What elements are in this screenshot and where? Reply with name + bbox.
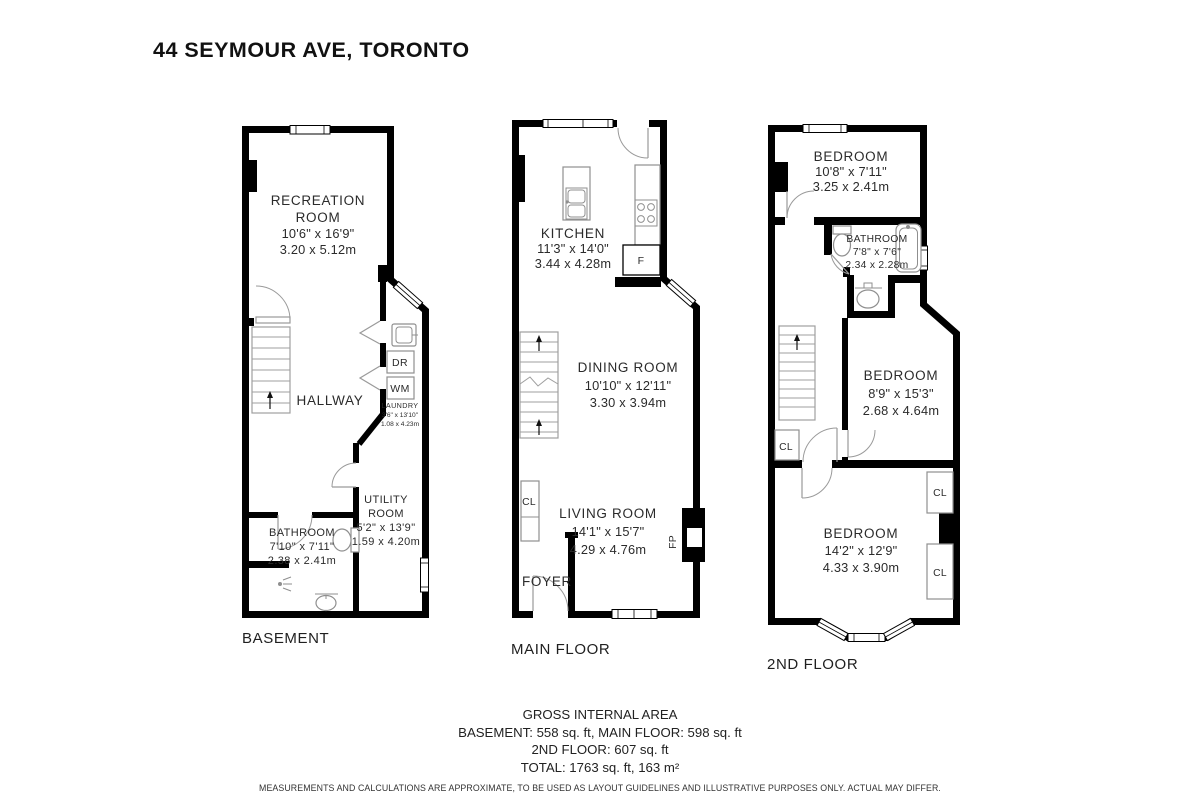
kitchen-metric: 3.44 x 4.28m xyxy=(535,256,611,271)
bedroom3-metric: 4.33 x 3.90m xyxy=(823,560,899,575)
utility-room-name-1: UTILITY xyxy=(364,494,408,506)
disclaimer-text: MEASUREMENTS AND CALCULATIONS ARE APPROX… xyxy=(0,780,1200,798)
kitchen-imperial: 11'3" x 14'0" xyxy=(537,241,609,256)
vanity-sink-icon xyxy=(855,283,882,308)
recreation-room-name-1: RECREATION xyxy=(271,193,366,208)
basement-bathroom-name: BATHROOM xyxy=(269,527,335,539)
utility-room-imperial: 5'2" x 13'9" xyxy=(356,522,415,534)
fireplace-label: FP xyxy=(668,535,679,549)
bedroom2-imperial: 8'9" x 15'3" xyxy=(868,386,933,401)
laundry-name: LAUNDRY xyxy=(381,401,418,410)
closet-label: CL xyxy=(779,442,793,453)
recreation-room-imperial: 10'6" x 16'9" xyxy=(282,226,355,241)
second-bathroom-imperial: 7'8" x 7'6" xyxy=(853,247,901,258)
fireplace-icon xyxy=(682,508,705,562)
bedroom3-imperial: 14'2" x 12'9" xyxy=(825,543,898,558)
window-icon xyxy=(393,281,422,308)
closet-box xyxy=(521,481,539,541)
bedroom1-metric: 3.25 x 2.41m xyxy=(813,179,889,194)
closet-label: CL xyxy=(933,488,947,499)
dryer-label: DR xyxy=(392,357,408,369)
living-room-imperial: 14'1" x 15'7" xyxy=(572,524,645,539)
recreation-room-metric: 3.20 x 5.12m xyxy=(280,242,356,257)
kitchen-island xyxy=(563,167,590,220)
window-icon xyxy=(666,279,695,306)
main-floor-caption: MAIN FLOOR xyxy=(511,641,610,658)
floorplan-page: 44 SEYMOUR AVE, TORONTO xyxy=(0,0,1200,805)
washer-label: WM xyxy=(390,383,409,395)
window-icon xyxy=(612,610,657,619)
shower-head-icon xyxy=(278,577,292,591)
dining-room-metric: 3.30 x 3.94m xyxy=(590,395,666,410)
second-floor-caption: 2ND FLOOR xyxy=(767,656,858,673)
basement-stairs xyxy=(252,327,290,413)
bay-window-icon xyxy=(848,634,885,642)
bedroom1-name: BEDROOM xyxy=(814,149,889,164)
main-closet-label: CL xyxy=(522,497,536,508)
bedroom2-name: BEDROOM xyxy=(864,368,939,383)
second-stairs xyxy=(779,326,815,420)
foyer-name: FOYER xyxy=(522,574,572,589)
area-line-basement-main: BASEMENT: 558 sq. ft, MAIN FLOOR: 598 sq… xyxy=(0,724,1200,742)
living-room-metric: 4.29 x 4.76m xyxy=(570,542,646,557)
area-line-second: 2ND FLOOR: 607 sq. ft xyxy=(0,741,1200,759)
utility-room-metric: 1.59 x 4.20m xyxy=(352,536,420,548)
window-icon xyxy=(543,120,613,128)
bay-window-icon xyxy=(884,618,915,640)
closet-label: CL xyxy=(933,568,947,579)
second-bathroom-metric: 2.34 x 2.28m xyxy=(845,260,908,271)
gross-area-heading: GROSS INTERNAL AREA xyxy=(0,706,1200,724)
basement-bathroom-imperial: 7'10" x 7'11" xyxy=(270,541,335,553)
dining-room-name: DINING ROOM xyxy=(578,360,679,375)
second-bathroom-name: BATHROOM xyxy=(846,234,907,245)
second-floor-plan: BEDROOM 10'8" x 7'11" 3.25 x 2.41m BATHR… xyxy=(755,112,975,687)
stairs-break-line xyxy=(520,377,558,386)
window-icon xyxy=(803,125,847,133)
bay-window-icon xyxy=(817,618,848,640)
footer-area-summary: GROSS INTERNAL AREA BASEMENT: 558 sq. ft… xyxy=(0,706,1200,798)
dining-room-imperial: 10'10" x 12'11" xyxy=(585,378,671,393)
bedroom2-metric: 2.68 x 4.64m xyxy=(863,403,939,418)
area-line-total: TOTAL: 1763 sq. ft, 163 m² xyxy=(0,759,1200,777)
fridge-label: F xyxy=(638,255,645,267)
kitchen-name: KITCHEN xyxy=(541,226,605,241)
hallway-name: HALLWAY xyxy=(297,393,364,408)
laundry-imperial: 3'6" x 13'10" xyxy=(382,412,419,419)
bifold-door-icon xyxy=(360,321,380,344)
page-title: 44 SEYMOUR AVE, TORONTO xyxy=(153,38,470,63)
toilet-icon xyxy=(833,226,851,234)
living-room-name: LIVING ROOM xyxy=(559,506,657,521)
bedroom1-imperial: 10'8" x 7'11" xyxy=(815,164,887,179)
basement-bathroom-metric: 2.38 x 2.41m xyxy=(268,555,336,567)
bedroom3-name: BEDROOM xyxy=(824,526,899,541)
main-stairs xyxy=(520,332,558,438)
basement-doors xyxy=(256,286,380,549)
door-icon xyxy=(256,317,290,323)
bifold-door-icon xyxy=(360,366,380,390)
utility-room-name-2: ROOM xyxy=(368,508,404,520)
basement-caption: BASEMENT xyxy=(242,630,329,647)
main-floor-plan: KITCHEN 11'3" x 14'0" 3.44 x 4.28m F DIN… xyxy=(500,105,715,665)
laundry-metric: 1.08 x 4.23m xyxy=(381,421,420,428)
recreation-room-name-2: ROOM xyxy=(296,210,341,225)
basement-plan: RECREATION ROOM 10'6" x 16'9" 3.20 x 5.1… xyxy=(240,115,440,655)
